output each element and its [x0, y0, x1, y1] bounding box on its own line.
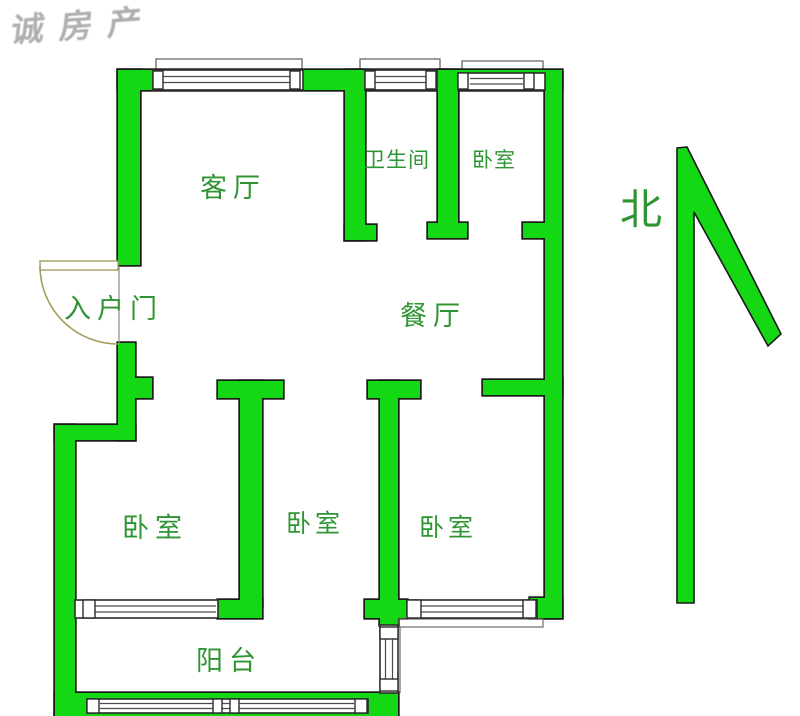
room-label-living-room: 客厅	[200, 173, 266, 204]
window-bedroom-top	[458, 73, 545, 90]
floor-plan-drawing: 客厅 卫生间 卧室 入户门 餐厅 卧室 卧室 卧室 阳台 北	[0, 0, 800, 716]
room-label-bedroom-top: 卧室	[472, 148, 516, 172]
floor-plan-page: 诚房产	[0, 0, 800, 716]
window-bedroom-right	[407, 600, 537, 618]
north-arrow	[677, 147, 781, 603]
room-label-bedroom-right: 卧室	[419, 513, 477, 542]
room-label-bedroom-left: 卧室	[122, 513, 188, 544]
room-label-bathroom: 卫生间	[364, 148, 430, 172]
window-living-room	[153, 70, 303, 90]
room-label-entry-door: 入户门	[64, 294, 163, 325]
window-balcony-front	[87, 699, 368, 713]
window-balcony-side	[380, 625, 398, 693]
window-bedroom-left-balcony	[75, 600, 218, 618]
window-bathroom	[365, 70, 437, 90]
room-label-bedroom-middle: 卧室	[286, 509, 344, 538]
room-label-balcony: 阳台	[196, 646, 262, 677]
entry-door-leaf	[40, 261, 118, 270]
room-label-dining-room: 餐厅	[400, 301, 466, 332]
thin-edges	[398, 619, 543, 693]
north-label: 北	[620, 185, 662, 234]
